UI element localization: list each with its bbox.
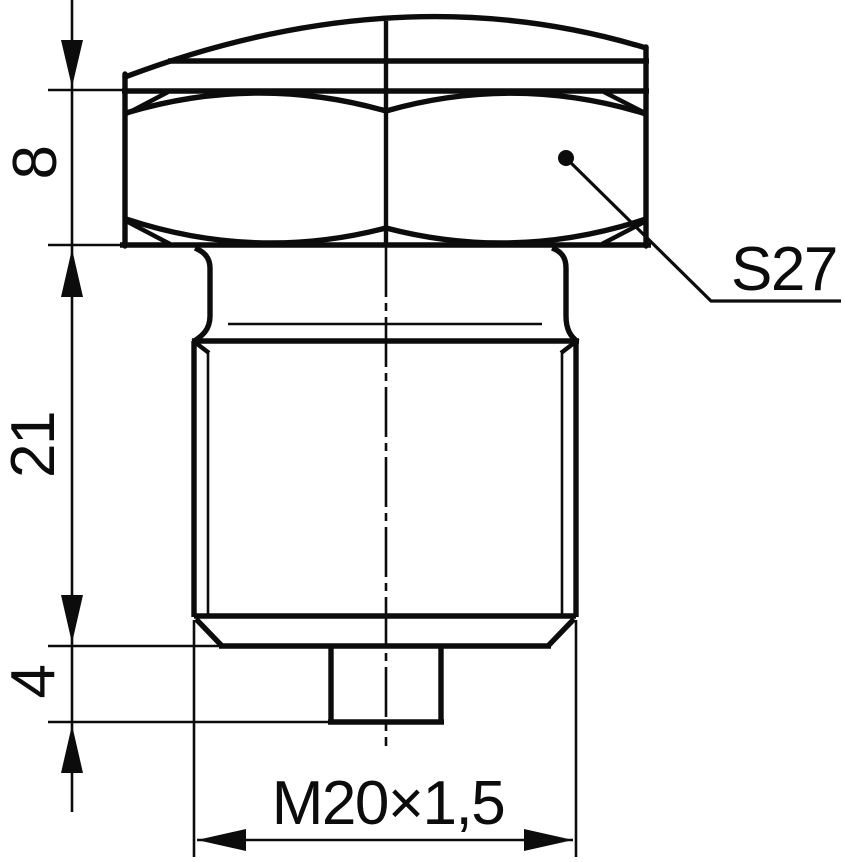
tip-chamfer-right [548,619,574,646]
arrowhead-dim21-bottom [61,595,83,643]
wrench-size-callout: S27 [558,150,841,304]
head-chamfer-arc-right-top [386,93,646,114]
hex-head-outline [120,17,651,246]
drawing-sheet: 8 21 4 M20×1,5 S27 [0,0,845,862]
left-dimension-stack: 8 21 4 [0,0,332,812]
dim-label-body-length: 21 [0,412,68,478]
dim-label-tip-length: 4 [0,665,68,698]
arrowhead-thread-left [197,829,246,851]
arrowhead-thread-right [524,829,573,851]
arrowhead-dim8-top [61,40,83,87]
thread-runout-chamfer-right [561,343,574,353]
thread-spec-label: M20×1,5 [272,769,505,838]
wrench-size-label: S27 [731,235,837,304]
arrowhead-dim21-top [61,249,83,297]
tip-chamfer-left [196,619,222,646]
arrowhead-dim4-bottom [61,725,83,773]
neck-right-profile [552,248,578,342]
dim-label-head-height: 8 [1,147,70,180]
technical-drawing-canvas: 8 21 4 M20×1,5 S27 [0,0,845,862]
thread-runout-chamfer-left [196,343,209,353]
neck-left-profile [193,248,210,342]
